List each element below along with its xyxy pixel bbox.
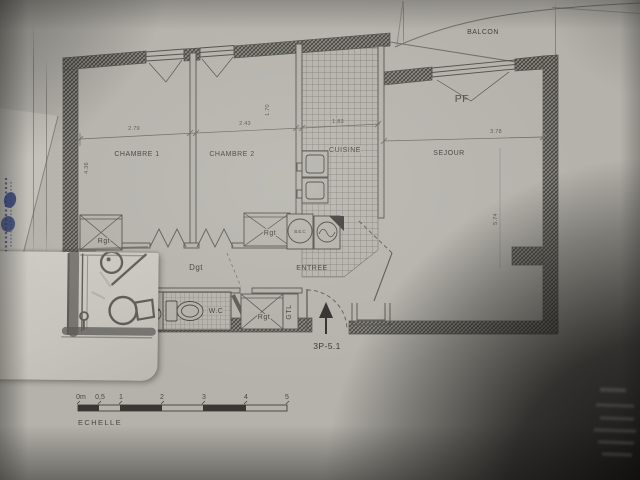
paper-crease-2 [46,58,47,260]
entrance-arrow-icon [319,302,333,334]
room-label-entree: ENTREE [296,265,327,272]
door-swings [144,221,392,330]
dimension-lines [77,121,546,268]
wall-corridor-top-1 [80,243,150,248]
wall-sejour-pier [384,67,432,85]
room-label-balcon: BALCON [467,29,499,36]
door-sejour [359,221,392,301]
label-rgt-chambre1: Rgt [98,238,110,245]
blue-print-marks-icon [0,178,18,252]
toilet-icon [166,301,203,321]
underlying-document-edge [0,108,58,262]
paper-crease-1 [33,22,34,260]
partition-chambre1-chambre2 [190,53,196,243]
room-label-cuisine: CUISINE [329,147,361,154]
dim-chambre1-width: 2.79 [128,126,140,132]
bathroom-pencil-sketch [0,251,159,381]
unit-type-label: 3P-5.1 [313,341,340,351]
dim-sejour-width: 3.78 [490,129,502,135]
room-label-chambre2: CHAMBRE 2 [209,151,254,158]
pencil-wall-left [73,254,74,332]
dim-left-depth: 4.36 [84,162,90,174]
sejour-cabinet [352,303,390,325]
scale-title: ECHELLE [78,418,122,427]
wall-corridor-bottom-1 [148,288,240,293]
cooktop-icon [314,216,344,249]
gtl-duct [283,294,298,329]
closet-chambre1 [80,215,122,250]
wall-right-step [512,247,543,265]
door-wc-dashed [227,253,241,287]
windows [146,46,515,102]
dim-chambre2-width: 2.43 [239,121,251,127]
wall-corridor-top-2 [184,243,199,248]
water-heater-bec-icon [287,214,313,249]
label-pf: PF [455,93,469,105]
window-chambre1 [146,49,184,82]
scale-tick-2: 2 [160,394,164,401]
overlay-paper-bathroom-sketch [0,251,159,381]
wall-corridor-top-3 [232,243,302,248]
label-rgt-entree: Rgt [258,314,270,321]
partition-chambre2-cuisine [296,44,302,248]
wall-top-pier [184,48,200,61]
wall-top-left [63,51,146,70]
kitchen-floor-tiles [302,38,378,277]
paper-edge-top-right [552,7,640,14]
room-label-chambre1: CHAMBRE 1 [114,151,159,158]
dim-sejour-depth: 5.74 [493,213,499,225]
scale-tick-0: 0m [76,394,86,401]
scale-bar: 0m 0,5 1 2 3 4 5 ECHELLE [76,394,289,427]
kitchen-fixtures [287,151,344,249]
underlying-document [0,0,640,480]
wall-top-right-corner [515,56,543,71]
wall-bottom-left [148,318,312,332]
scale-tick-3: 3 [202,394,206,401]
label-rgt-chambre2: Rgt [264,230,276,237]
photographed-floor-plan: 2.79 2.43 1.83 3.78 4.36 1.70 5.74 CHAMB… [0,0,640,480]
entry-door [307,289,347,330]
bottom-right-shadow [0,0,640,480]
wc-door-leaf [233,295,250,329]
light-falloff [0,0,640,480]
window-sejour-pf [432,60,515,101]
pencil-wall-bottom [66,331,152,332]
wall-top-mid [234,33,390,58]
scale-tick-5: 5 [285,394,289,401]
wall-corridor-bottom-2 [252,288,302,293]
edge-vignette [0,0,640,480]
washbasin-icon [109,297,154,324]
wall-bottom-right [349,321,558,334]
partition-cuisine-sejour [378,46,384,218]
kitchen-sink-icon [297,151,328,203]
scale-tick-4: 4 [244,394,248,401]
door-chambre2 [197,229,233,247]
dim-cuisine-width: 1.83 [332,119,344,125]
paper-crease-4 [555,0,556,120]
room-label-sejour: SEJOUR [433,150,464,157]
scale-tick-05: 0,5 [95,394,105,401]
wc-room [147,292,231,330]
window-chambre2 [200,46,234,78]
floor-plan-drawing: 2.79 2.43 1.83 3.78 4.36 1.70 5.74 CHAMB… [0,0,640,480]
paper-crease-3 [403,0,404,46]
dim-mid-depth: 1.70 [265,104,271,116]
door-chambre1 [150,229,186,247]
label-bec: B.E.C [294,229,305,234]
room-label-wc: W.C [209,308,224,315]
scale-tick-1: 1 [119,394,123,401]
closet-chambre2 [244,213,290,246]
closet-entree [241,294,283,329]
pencil-diagonal [112,254,145,284]
label-gtl: GTL [286,304,293,319]
room-label-dgt: Dgt [189,263,203,272]
